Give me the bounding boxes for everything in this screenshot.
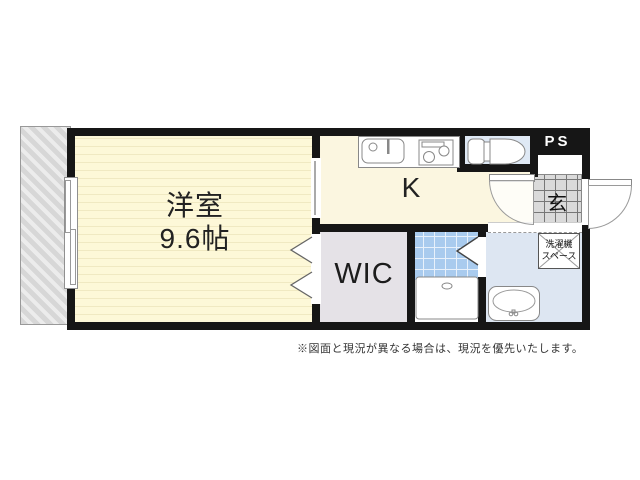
wall-middle bbox=[312, 224, 488, 232]
toilet-icon bbox=[467, 136, 527, 167]
main-room-label: 洋室 9.6帖 bbox=[115, 189, 275, 255]
window-sash-lower bbox=[70, 229, 76, 285]
sliding-door-room-kitchen bbox=[311, 158, 321, 218]
main-room-name: 洋室 bbox=[115, 189, 275, 222]
wall-bottom bbox=[67, 322, 590, 330]
sliding-door-panel bbox=[314, 161, 316, 215]
wall-top bbox=[67, 128, 590, 136]
window-left bbox=[64, 177, 78, 289]
washer-space-label-line2: スペース bbox=[539, 250, 579, 262]
bathtub-icon bbox=[488, 286, 540, 321]
wic-door-chevron-top-icon bbox=[289, 236, 313, 264]
wic-label: WIC bbox=[317, 258, 411, 291]
washer-space-box: 洗濯機 スペース bbox=[538, 233, 580, 269]
disclaimer-note: ※図面と現況が異なる場合は、現況を優先いたします。 bbox=[297, 340, 597, 356]
washbasin-icon bbox=[415, 276, 479, 320]
floor-plan: PS bbox=[0, 0, 640, 480]
entrance-door-swing-arc bbox=[588, 185, 632, 229]
window-sash-upper bbox=[65, 180, 71, 233]
pipe-space-label: PS bbox=[533, 128, 582, 155]
stove-icon bbox=[418, 139, 455, 166]
wall-right bbox=[582, 128, 590, 330]
entrance-step-strip bbox=[488, 222, 582, 233]
wic-door-chevron-bottom-icon bbox=[289, 271, 313, 299]
pipe-space-box: PS bbox=[533, 128, 582, 155]
washer-space-label-line1: 洗濯機 bbox=[539, 238, 579, 250]
entrance-label: 玄 bbox=[546, 187, 568, 216]
bath-doorway-gap bbox=[478, 237, 486, 277]
washer-space-label: 洗濯機 スペース bbox=[539, 238, 579, 262]
ps-recess bbox=[538, 155, 580, 174]
kitchen-sink-icon bbox=[361, 138, 407, 165]
washroom-door-chevron-icon bbox=[455, 236, 479, 266]
main-room-size: 9.6帖 bbox=[115, 222, 275, 255]
kitchen-label: K bbox=[395, 172, 427, 204]
